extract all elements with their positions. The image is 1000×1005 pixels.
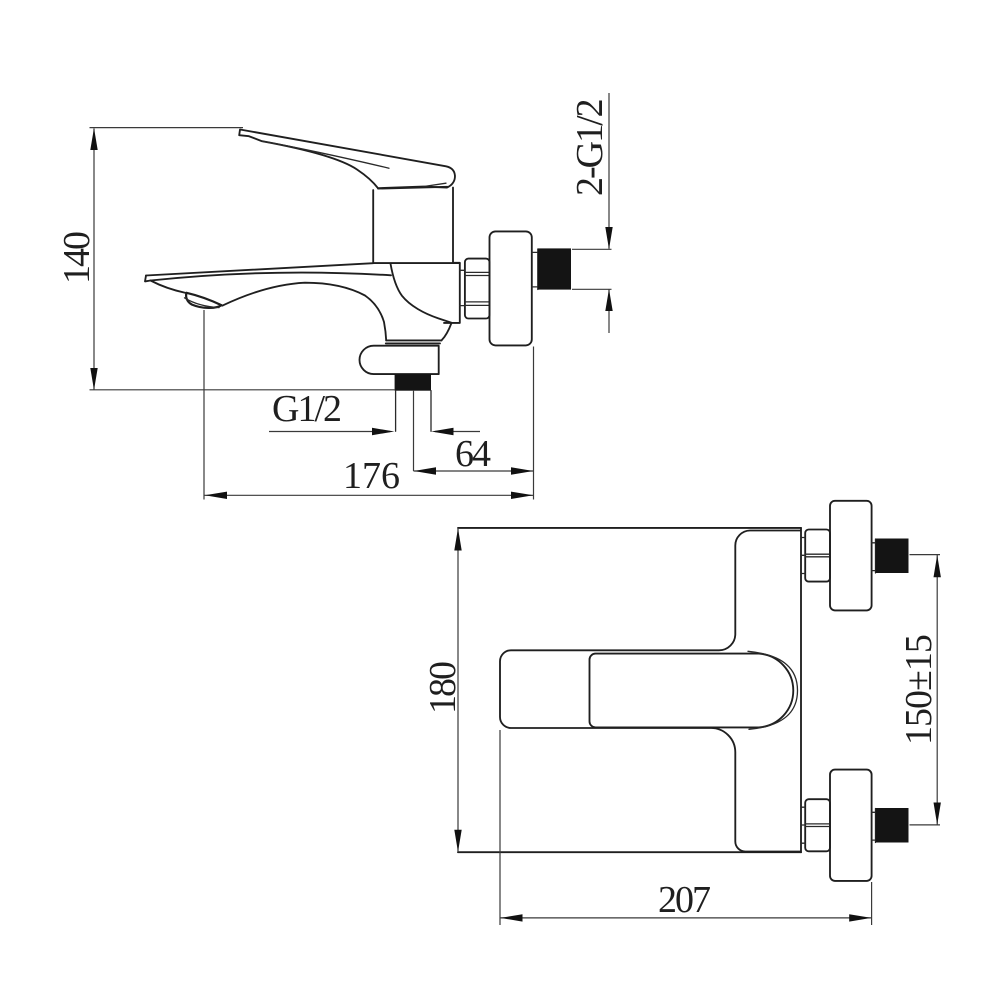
svg-text:64: 64 bbox=[455, 433, 491, 475]
svg-text:180: 180 bbox=[422, 662, 464, 714]
svg-text:G1/2: G1/2 bbox=[272, 388, 340, 430]
svg-text:150±15: 150±15 bbox=[898, 635, 940, 745]
svg-text:140: 140 bbox=[56, 232, 98, 284]
svg-text:2-G1/2: 2-G1/2 bbox=[569, 100, 611, 196]
svg-text:176: 176 bbox=[343, 455, 400, 497]
svg-text:207: 207 bbox=[658, 879, 710, 921]
